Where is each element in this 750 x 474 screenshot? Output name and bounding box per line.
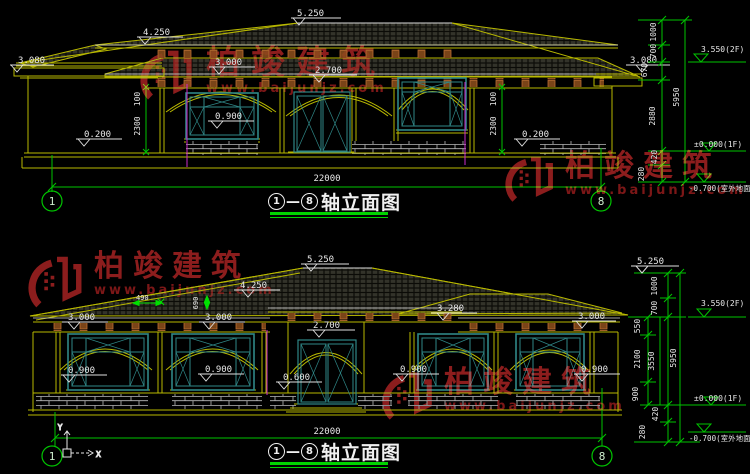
dim-label: 4.250 bbox=[240, 281, 267, 291]
axis-number: 8 bbox=[599, 450, 606, 463]
dim-label: 2880 bbox=[648, 106, 657, 125]
dim-label: 3.000 bbox=[68, 313, 95, 323]
title-underline bbox=[270, 462, 388, 465]
dim-label: 3.280 bbox=[437, 304, 464, 314]
dim-label: 690 bbox=[192, 297, 200, 310]
level-label: 3.550(2F) bbox=[701, 299, 744, 308]
dim-label: 2300 bbox=[133, 116, 142, 135]
dim-label: 0.900 bbox=[400, 365, 427, 375]
bottom-drawing-title: 1 — 8 轴立面图 bbox=[268, 438, 401, 465]
elevation-drawings[interactable]: 5.250 4.250 3.080 3.000 2.700 0.900 0.20… bbox=[0, 0, 750, 474]
axis-number: 8 bbox=[598, 195, 605, 208]
bottom-window-3 bbox=[418, 334, 488, 390]
dim-label: 0.900 bbox=[68, 366, 95, 376]
dim-label: 5950 bbox=[672, 87, 681, 106]
top-elevation: 5.250 4.250 3.080 3.000 2.700 0.900 0.20… bbox=[10, 9, 750, 211]
level-label: -0.700(室外地面) bbox=[689, 183, 750, 193]
dim-label: 22000 bbox=[313, 427, 340, 437]
dim-label: 0.600 bbox=[283, 373, 310, 383]
level-label: -0.700(室外地面) bbox=[689, 433, 750, 443]
dim-label: 5950 bbox=[669, 348, 678, 367]
title-underline-thin bbox=[270, 467, 388, 468]
title-underline bbox=[270, 212, 388, 215]
dim-label: 490 bbox=[136, 294, 149, 302]
ucs-icon: Y X bbox=[58, 423, 101, 459]
dim-label: 100 bbox=[489, 92, 498, 107]
level-label: 3.550(2F) bbox=[701, 45, 744, 54]
top-entry-door bbox=[294, 92, 350, 152]
dim-label: 3.080 bbox=[18, 56, 45, 66]
top-width-dim: 22000 bbox=[48, 148, 605, 192]
dim-label: 5.250 bbox=[637, 257, 664, 267]
ucs-x-label: X bbox=[96, 450, 101, 459]
title-underline-thin bbox=[270, 217, 388, 218]
dim-label: 5.250 bbox=[307, 255, 334, 265]
dim-label: 3.000 bbox=[205, 313, 232, 323]
dim-label: 100 bbox=[133, 92, 142, 107]
title-axis-from: 1 bbox=[268, 193, 285, 210]
dim-label: 420 bbox=[651, 407, 660, 422]
dim-label: 280 bbox=[638, 425, 647, 440]
level-label: ±0.000(1F) bbox=[694, 394, 742, 403]
bottom-elevation: 5.250 4.250 3.000 3.000 3.280 3.000 2.70… bbox=[28, 255, 750, 466]
dim-label: 4.250 bbox=[143, 28, 170, 38]
dim-label: 2.700 bbox=[315, 66, 342, 76]
dim-label: 0.200 bbox=[522, 130, 549, 140]
dim-label: 3.000 bbox=[578, 312, 605, 322]
dim-label: 2100 bbox=[633, 349, 642, 368]
cad-drawing-canvas[interactable]: 5.250 4.250 3.080 3.000 2.700 0.900 0.20… bbox=[0, 0, 750, 474]
ucs-y-label: Y bbox=[58, 423, 63, 432]
level-label: ±0.000(1F) bbox=[694, 140, 742, 149]
dim-label: 0.200 bbox=[84, 130, 111, 140]
title-dash: — bbox=[286, 194, 300, 210]
axis-number: 1 bbox=[49, 450, 56, 463]
dim-label: 5.250 bbox=[297, 9, 324, 19]
title-dash: — bbox=[286, 444, 300, 460]
dim-label: 1000 bbox=[649, 22, 658, 41]
dim-label: 670 bbox=[640, 63, 649, 78]
top-wall bbox=[22, 76, 618, 168]
top-right-chain: 1000 700 670 2880 420 280 5950 3.550(2F)… bbox=[637, 16, 750, 193]
title-text: 轴立面图 bbox=[321, 438, 401, 465]
dim-label: 420 bbox=[650, 150, 659, 165]
top-drawing-title: 1 — 8 轴立面图 bbox=[268, 188, 401, 215]
dim-label: 22000 bbox=[313, 174, 340, 184]
dim-label: 1000 bbox=[650, 276, 659, 295]
dim-label: 700 bbox=[649, 44, 658, 59]
dim-label: 2.700 bbox=[313, 321, 340, 331]
dim-label: 280 bbox=[637, 167, 646, 182]
dim-label: 3.000 bbox=[215, 58, 242, 68]
bottom-window-1 bbox=[68, 334, 148, 390]
dim-label: 3550 bbox=[647, 351, 656, 370]
dim-label: 550 bbox=[633, 319, 642, 334]
bottom-window-4 bbox=[516, 334, 584, 390]
dim-label: 0.900 bbox=[581, 365, 608, 375]
axis-number: 1 bbox=[49, 195, 56, 208]
top-windows bbox=[186, 78, 466, 139]
title-axis-to: 8 bbox=[301, 443, 318, 460]
dim-label: 2300 bbox=[489, 116, 498, 135]
title-text: 轴立面图 bbox=[321, 188, 401, 215]
top-roof bbox=[14, 23, 642, 88]
title-axis-from: 1 bbox=[268, 443, 285, 460]
dim-label: 0.900 bbox=[205, 365, 232, 375]
dim-label: 700 bbox=[650, 301, 659, 316]
bottom-right-chain: 5.250 1000 700 550 2100 900 420 280 3550… bbox=[628, 257, 750, 446]
title-axis-to: 8 bbox=[301, 193, 318, 210]
dim-label: 0.900 bbox=[215, 112, 242, 122]
dim-label: 900 bbox=[631, 387, 640, 402]
bottom-entry-door bbox=[298, 340, 356, 404]
bottom-window-2 bbox=[172, 334, 254, 390]
